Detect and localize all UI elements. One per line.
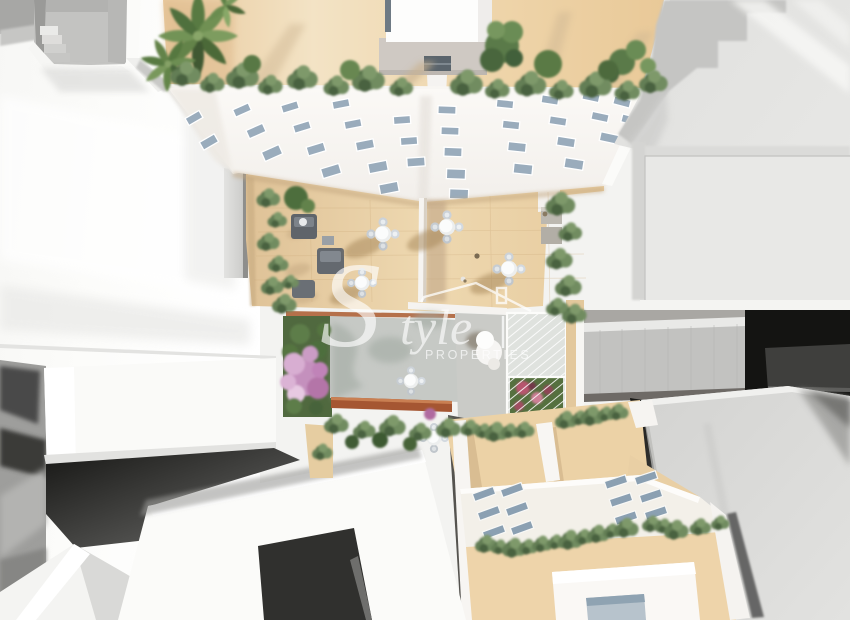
- svg-text:S: S: [320, 238, 381, 373]
- svg-text:tyle: tyle: [400, 299, 472, 355]
- svg-text:PROPERTIES: PROPERTIES: [425, 348, 531, 362]
